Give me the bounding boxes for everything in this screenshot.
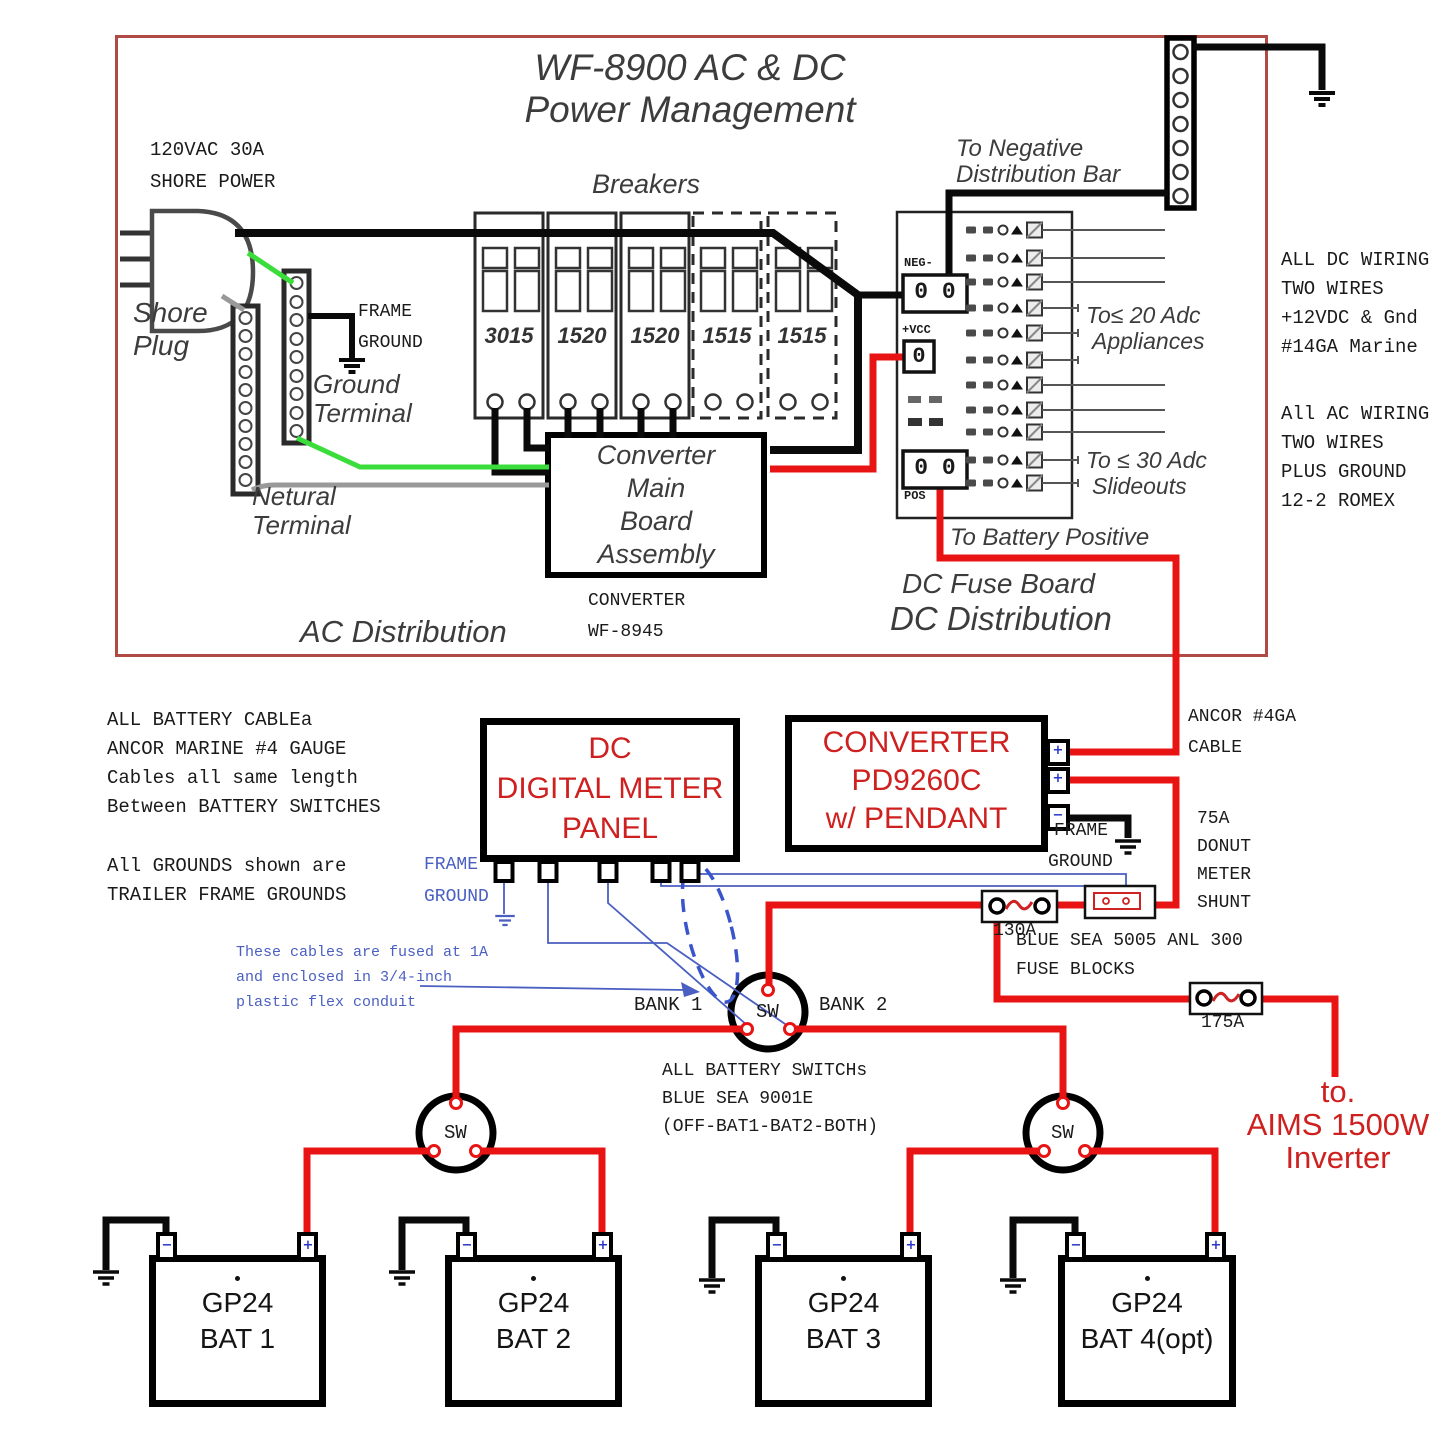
pos-terminal-block — [903, 451, 967, 488]
note-arrowhead — [681, 982, 700, 997]
vcc-terminal-block — [904, 341, 934, 372]
plus-terminal — [1048, 741, 1068, 764]
fuse-block-175a — [1190, 983, 1262, 1014]
meter-panel-tabs — [496, 862, 699, 881]
frame-ground-icon — [1309, 93, 1335, 105]
battery-switch-circles — [419, 975, 1100, 1170]
wiring-layer — [0, 0, 1451, 1444]
neutral-terminal-bar — [233, 306, 258, 494]
frame-ground-icon-blue — [495, 916, 515, 925]
frame-ground-icon — [1115, 841, 1141, 853]
negative-distribution-bar — [1167, 38, 1194, 208]
neg-terminal-block — [903, 275, 967, 312]
donut-meter-shunt — [1085, 886, 1155, 918]
ground-terminal-bar — [284, 271, 309, 443]
battery-terminal-posts — [158, 1234, 1224, 1259]
minus-terminal — [1048, 806, 1068, 829]
plus-terminal — [1048, 769, 1068, 792]
wiring-diagram: Converter Main Board Assembly DC DIGITAL… — [0, 0, 1451, 1444]
fuse-block-130a — [982, 891, 1057, 922]
frame-ground-icon — [339, 360, 365, 372]
frame-ground-icon — [93, 1272, 119, 1284]
pd9260c-terminals — [1048, 741, 1068, 829]
frame-ground-icon — [1000, 1280, 1026, 1292]
frame-ground-icon — [389, 1272, 415, 1284]
frame-ground-icon — [699, 1280, 725, 1292]
